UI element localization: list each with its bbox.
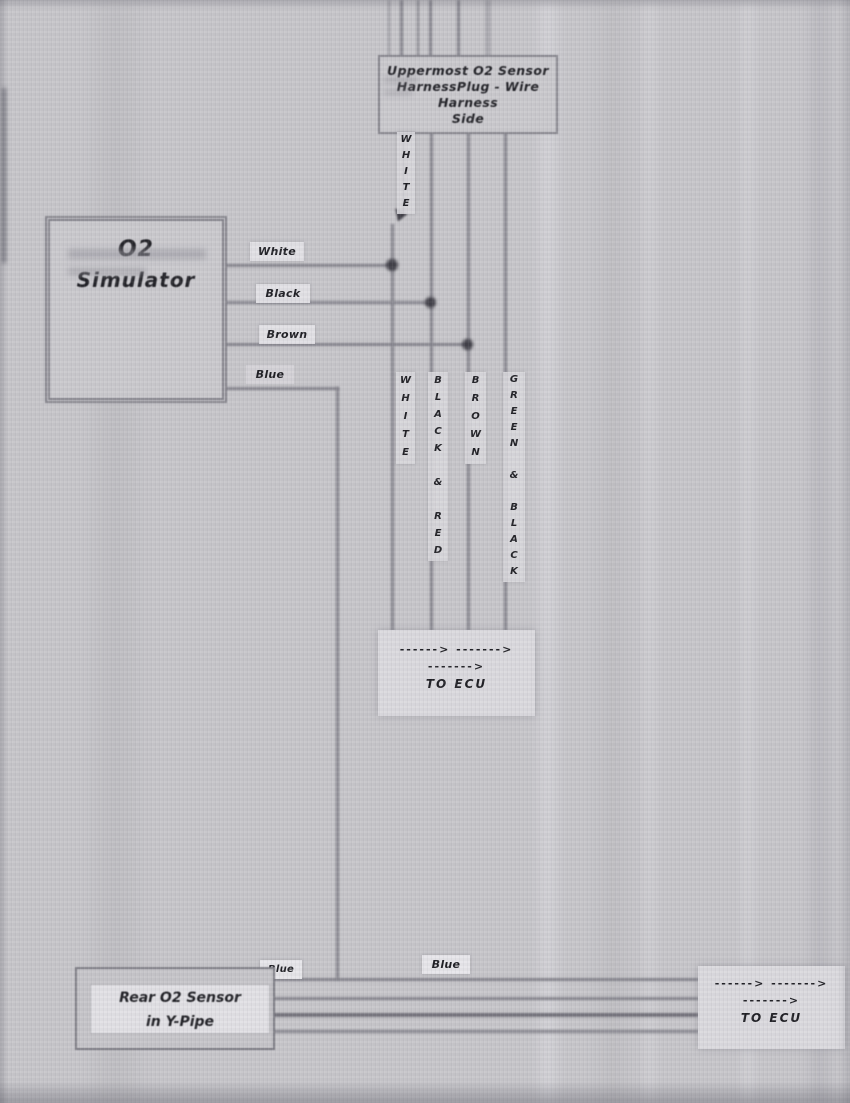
harness-wire <box>429 0 432 57</box>
ecu-arrow-line: ------> -------> <box>698 975 845 992</box>
erased-text-smudge <box>68 268 146 275</box>
harness-wire <box>485 0 491 57</box>
wire-tag-blue-simulator: Blue <box>246 365 294 384</box>
ecu-arrow-line: -------> <box>698 992 845 1009</box>
rear-o2-sensor-label-panel: Rear O2 Sensor in Y-Pipe <box>90 984 270 1034</box>
rear-sensor-wire-3 <box>271 1030 699 1033</box>
wire-tag-brown: Brown <box>259 325 315 344</box>
scan-grain-overlay <box>0 0 850 1103</box>
to-ecu-box-right: ------> -------> -------> TO ECU <box>698 966 845 1049</box>
rear-sensor-label-line: in Y-Pipe <box>91 1009 269 1033</box>
o2-simulator-box: O2 Simulator <box>45 216 227 403</box>
wire-blue-vertical <box>336 387 339 980</box>
wire-black-lead <box>217 301 433 304</box>
scan-streak <box>540 0 556 1103</box>
ecu-arrow-line: ------> -------> <box>378 641 535 658</box>
scan-smudge <box>384 90 412 95</box>
harness-wire <box>417 0 419 57</box>
simulator-label-line: Simulator <box>50 262 222 292</box>
scan-edge-vignette <box>0 0 850 1103</box>
scanned-wiring-diagram: Uppermost O2 Sensor HarnessPlug - Wire H… <box>0 0 850 1103</box>
wire-white-lead <box>217 264 394 267</box>
connector-label-line: Side <box>380 111 556 127</box>
ecu-arrow-line: -------> <box>378 658 535 675</box>
to-ecu-box-middle: ------> -------> -------> TO ECU <box>378 630 535 716</box>
scan-streak <box>645 0 655 1103</box>
rear-sensor-wire-2 <box>271 1013 699 1017</box>
junction-dot-brown <box>462 339 473 350</box>
rear-sensor-wire-1 <box>271 997 699 1000</box>
wire-tag-black: Black <box>256 284 310 303</box>
erased-text-smudge <box>68 249 206 259</box>
vertical-tag-brown: B R O W N <box>465 372 486 464</box>
wire-brown-lead <box>217 343 470 346</box>
scan-streak <box>742 0 754 1103</box>
to-ecu-label: TO ECU <box>378 675 535 693</box>
scan-streak <box>600 0 626 1103</box>
vertical-tag-white-top: W H I T E <box>397 132 415 214</box>
wire-tag-white: White <box>250 242 304 261</box>
vertical-tag-green-black: G R E E N & B L A C K <box>503 372 525 582</box>
junction-dot-black <box>425 297 436 308</box>
scan-streak <box>812 0 828 1103</box>
rear-o2-sensor-box: Rear O2 Sensor in Y-Pipe <box>75 967 275 1050</box>
harness-wire <box>400 0 403 57</box>
connector-label-line: Uppermost O2 Sensor <box>380 57 556 79</box>
scan-streak <box>96 0 136 1103</box>
rear-sensor-label-line: Rear O2 Sensor <box>91 985 269 1009</box>
wire-blue-lead <box>217 387 339 390</box>
harness-wire <box>388 0 390 57</box>
wire-white-vertical <box>391 224 394 631</box>
wire-blue-bottom <box>271 978 699 981</box>
vertical-tag-black-red: B L A C K & R E D <box>428 372 448 561</box>
harness-wire <box>457 0 460 57</box>
connector-label-line: Harness <box>380 95 556 111</box>
junction-dot-white <box>386 259 398 271</box>
wire-tag-blue-middle: Blue <box>422 955 470 974</box>
scan-streak <box>2 88 6 263</box>
uppermost-o2-sensor-connector-box: Uppermost O2 Sensor HarnessPlug - Wire H… <box>378 55 558 134</box>
vertical-tag-white: W H I T E <box>396 372 415 464</box>
scan-smudge <box>384 77 418 83</box>
to-ecu-label: TO ECU <box>698 1009 845 1027</box>
